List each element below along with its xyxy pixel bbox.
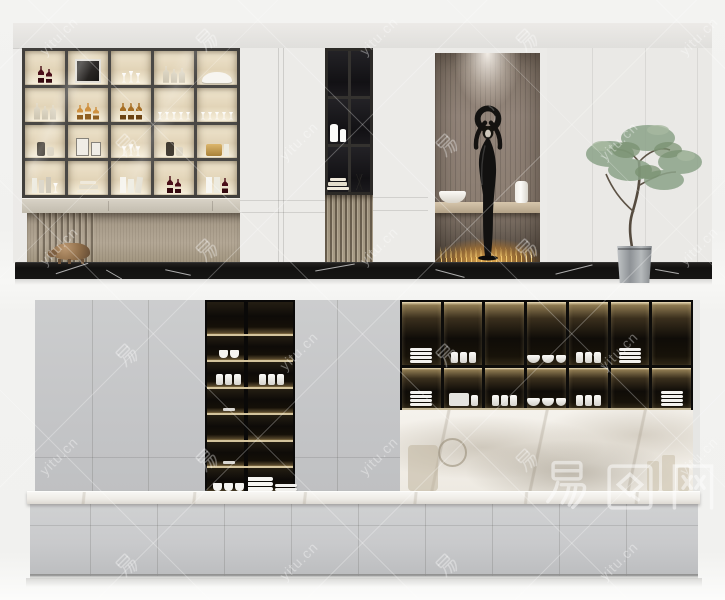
marble-vein bbox=[655, 269, 679, 274]
plates bbox=[652, 391, 691, 406]
display-shelf-cell bbox=[111, 51, 151, 85]
display-shelf-cell bbox=[111, 161, 151, 195]
dish-cabinet-cell bbox=[611, 368, 650, 408]
photo-frames bbox=[68, 138, 108, 156]
display-counter bbox=[22, 198, 240, 213]
dish-cabinet-cell bbox=[527, 368, 566, 408]
white-vase bbox=[515, 181, 528, 203]
drawer-seam bbox=[559, 503, 560, 576]
marble-vein bbox=[435, 269, 464, 278]
glasses-row bbox=[197, 112, 237, 120]
round-board bbox=[438, 438, 467, 467]
drawer-seam bbox=[108, 201, 109, 211]
dish-cabinet-cell bbox=[444, 302, 483, 365]
glasses-row bbox=[154, 112, 194, 120]
open-shelf-row bbox=[207, 442, 293, 469]
marble-countertop bbox=[27, 491, 700, 504]
display-shelf-cell bbox=[197, 51, 237, 85]
dish-cabinet-cell bbox=[444, 368, 483, 408]
dish-cabinet-cell bbox=[652, 368, 691, 408]
plates bbox=[611, 348, 650, 363]
floor-shadow bbox=[26, 578, 702, 587]
bowls bbox=[527, 398, 566, 406]
plates2 bbox=[250, 477, 293, 491]
dish-cabinet-cell bbox=[527, 302, 566, 365]
potted-tree bbox=[572, 116, 712, 268]
jar bbox=[647, 461, 659, 491]
books-stack bbox=[68, 181, 108, 194]
cabinet-end-panel bbox=[693, 300, 700, 493]
plant-pot bbox=[616, 246, 653, 283]
dark-shelf-cell bbox=[328, 99, 348, 144]
display-shelf-cell bbox=[68, 161, 108, 195]
bowls bbox=[527, 355, 566, 363]
dark-unit-fluted-base bbox=[325, 195, 373, 263]
dish-cabinet-cell bbox=[485, 368, 524, 408]
display-shelf-cell bbox=[154, 161, 194, 195]
display-shelf-cell bbox=[68, 51, 108, 85]
marble-vein bbox=[315, 264, 355, 272]
drawer-seam bbox=[291, 503, 292, 576]
display-shelf-cell bbox=[111, 125, 151, 159]
drawer-seam bbox=[90, 503, 91, 576]
books-stack bbox=[328, 178, 348, 191]
dark-shelf-cell bbox=[328, 147, 348, 192]
display-shelf-cell bbox=[197, 88, 237, 122]
base-drawer-run bbox=[30, 503, 698, 576]
marble-vein bbox=[106, 270, 122, 280]
white-decor bbox=[197, 72, 237, 83]
art-frame bbox=[68, 59, 108, 83]
dark-shelf-cell bbox=[351, 51, 371, 96]
red-wine-2 bbox=[25, 66, 65, 83]
statue-niche bbox=[428, 48, 547, 263]
gold-decor bbox=[197, 144, 237, 156]
dish-cabinet-cell bbox=[652, 302, 691, 365]
upper-cabinet-left bbox=[35, 300, 205, 495]
plates bbox=[402, 391, 441, 406]
clear-bottles-3 bbox=[25, 103, 65, 120]
display-shelf-cell bbox=[197, 161, 237, 195]
plates bbox=[402, 348, 441, 363]
stem-glasses bbox=[111, 144, 151, 156]
drawer-seam bbox=[425, 503, 426, 576]
dark-dish-cabinet bbox=[400, 300, 693, 410]
drawer-seam bbox=[358, 503, 359, 576]
display-shelf-cell bbox=[25, 161, 65, 195]
dark-shelf-cell bbox=[351, 99, 371, 144]
niche-wood-back bbox=[435, 53, 540, 263]
display-shelf-cell bbox=[25, 125, 65, 159]
open-shelf-row bbox=[207, 302, 293, 336]
dish-cabinet-cell bbox=[611, 302, 650, 365]
marble-vein bbox=[165, 269, 191, 275]
vases2 bbox=[328, 124, 348, 142]
dish-cabinet-cell bbox=[569, 302, 608, 365]
drawer-seam bbox=[626, 503, 627, 576]
open-shelf-row bbox=[207, 362, 293, 389]
dish-cabinet-cell bbox=[485, 302, 524, 365]
dark-open-shelf-column bbox=[205, 300, 295, 495]
red-wine-2 bbox=[154, 176, 194, 193]
crown-band bbox=[13, 23, 712, 49]
dish-cabinet-cell bbox=[402, 302, 441, 365]
books-vertical bbox=[25, 177, 65, 193]
cutting-board bbox=[408, 445, 438, 491]
white-cabinet-left bbox=[240, 48, 325, 263]
amber-bottles-3 bbox=[68, 103, 108, 120]
jar bbox=[678, 467, 689, 491]
drawer-seam bbox=[212, 201, 213, 211]
drawer-seam bbox=[157, 503, 158, 576]
open-shelf-row bbox=[207, 389, 293, 416]
jar bbox=[662, 455, 675, 491]
brass-pig-sculpture bbox=[48, 243, 92, 264]
display-shelf-cell bbox=[25, 51, 65, 85]
dish-cabinet-cell bbox=[569, 368, 608, 408]
canisters bbox=[569, 352, 608, 363]
display-shelf-cell bbox=[197, 125, 237, 159]
floor-shadow bbox=[15, 278, 712, 285]
display-shelf-cell bbox=[68, 125, 108, 159]
whiskey-3 bbox=[111, 103, 151, 120]
dish-cabinet-cell bbox=[402, 368, 441, 408]
dark-shelf-unit bbox=[325, 48, 373, 195]
open-shelf-row bbox=[207, 415, 293, 442]
black-figure-statue bbox=[464, 104, 512, 262]
canisters bbox=[485, 395, 524, 406]
canisters bbox=[569, 395, 608, 406]
drawer-seam bbox=[492, 503, 493, 576]
decanter bbox=[25, 142, 65, 156]
dark-shelf-cell bbox=[328, 51, 348, 96]
dark-shelf-cell bbox=[351, 147, 371, 192]
canisters bbox=[444, 352, 483, 363]
decanter bbox=[154, 142, 194, 156]
upper-cabinet-mid bbox=[295, 300, 400, 495]
open-shelf-row bbox=[207, 468, 293, 493]
marble-vein bbox=[56, 263, 89, 274]
drawer-seam bbox=[224, 503, 225, 576]
books-white-bottle bbox=[197, 177, 237, 193]
display-shelf-cell bbox=[111, 88, 151, 122]
render-canvas: yitu.cnyitu.cnyitu.cnyitu.cnyitu.cnyitu.… bbox=[0, 0, 725, 600]
marble-backsplash bbox=[400, 410, 693, 493]
open-shelf-row bbox=[207, 336, 293, 363]
stem-glasses bbox=[111, 71, 151, 83]
display-shelf-cell bbox=[25, 88, 65, 122]
clear-bottles-3 bbox=[154, 66, 194, 83]
drawer-seam bbox=[30, 525, 698, 526]
white-cabinet-mid bbox=[373, 48, 428, 263]
display-shelf-cell bbox=[154, 125, 194, 159]
branch bbox=[351, 174, 371, 190]
display-shelf-cell bbox=[154, 88, 194, 122]
books-white bbox=[111, 177, 151, 193]
glass-display-cabinet bbox=[22, 48, 240, 198]
display-shelf-cell bbox=[68, 88, 108, 122]
display-shelf-cell bbox=[154, 51, 194, 85]
box bbox=[444, 393, 483, 406]
canisters bbox=[250, 374, 293, 385]
